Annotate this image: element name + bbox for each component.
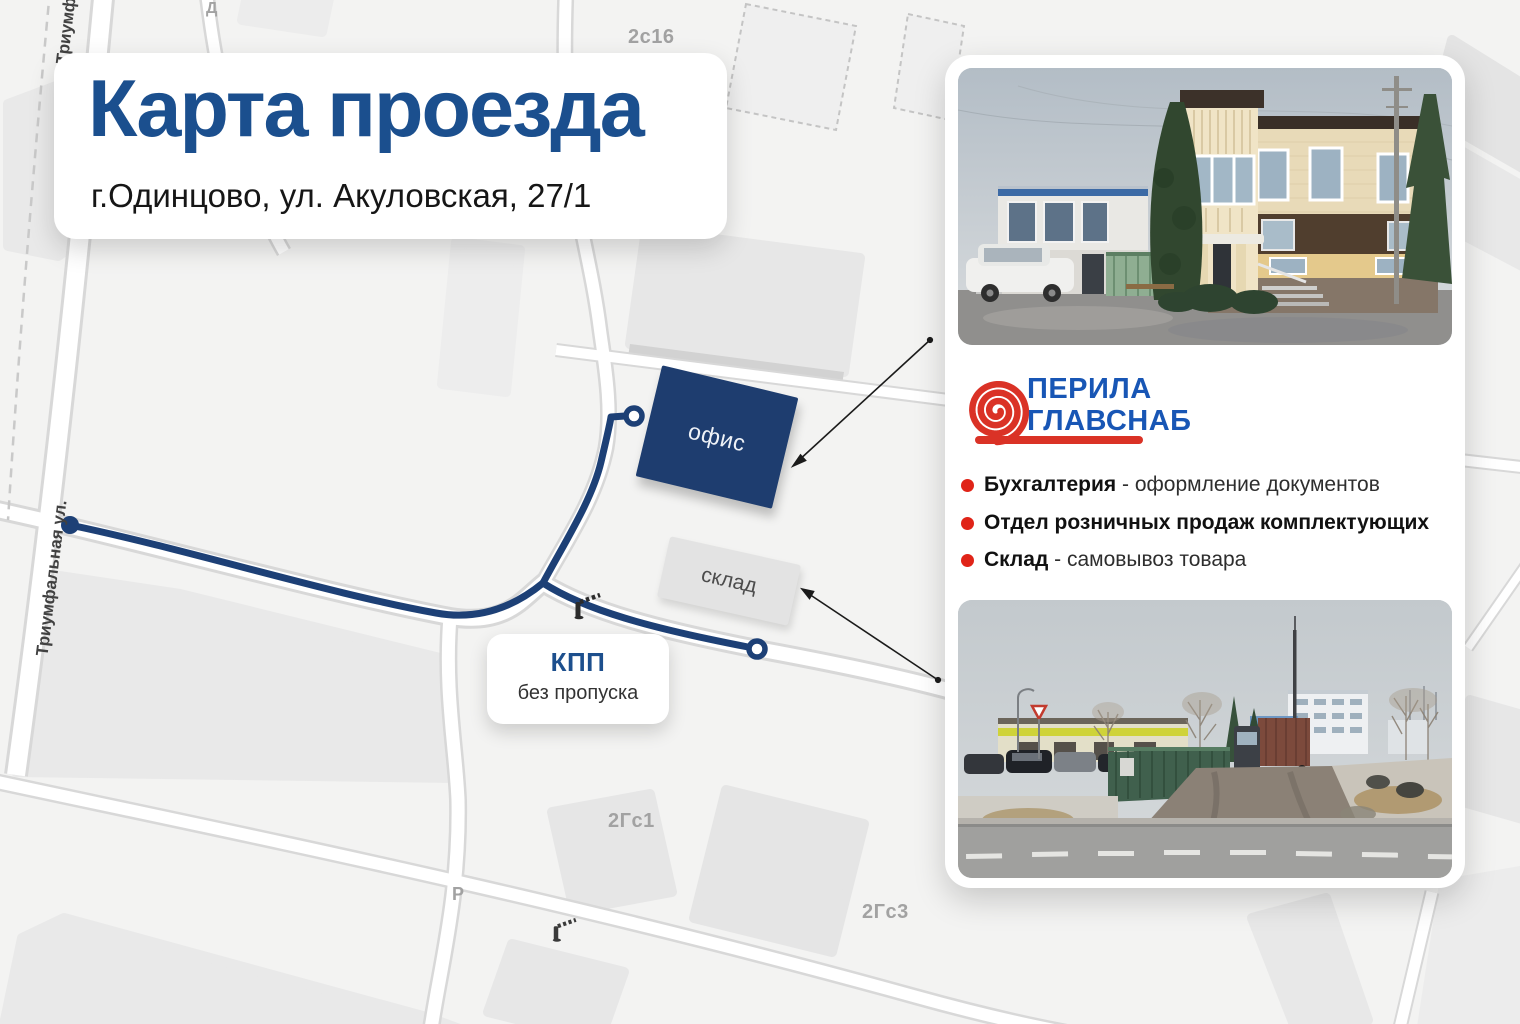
office-building-label: офис (686, 417, 749, 457)
bullet-icon (961, 554, 974, 567)
warehouse-building-label: склад (699, 563, 759, 599)
parcel-label-2gs3: 2Гс3 (862, 901, 909, 924)
office-photo-art (958, 68, 1452, 345)
bullet-icon (961, 479, 974, 492)
checkpoint-card: КПП без пропуска (487, 634, 669, 724)
parcel-label-2s16: 2с16 (628, 26, 675, 49)
bullet-retail-department: Отдел розничных продаж комплектующих (961, 511, 1457, 535)
logo-text-line1: ПЕРИЛА (1027, 373, 1152, 406)
parcel-label-p: Р (452, 884, 465, 905)
flyer-route-map: Триумфальная ул. Триумфальная ул. Д 2с16… (0, 0, 1520, 1024)
logo-text-line2: ГЛАВСНАБ (1027, 405, 1192, 438)
entrance-photo (958, 600, 1452, 878)
checkpoint-ring-marker (749, 641, 765, 657)
checkpoint-subtitle: без пропуска (487, 682, 669, 705)
bullet-warehouse: Склад - самовывоз товара (961, 548, 1457, 572)
page-title: Карта проезда (88, 55, 643, 164)
bullet-icon (961, 517, 974, 530)
office-photo (958, 68, 1452, 345)
bullet-accounting: Бухгалтерия - оформление документов (961, 473, 1457, 497)
title-card: Карта проезда г.Одинцово, ул. Акуловская… (54, 53, 727, 239)
bullet-rest-text: - самовывоз товара (1048, 548, 1246, 571)
barrier-gate-icon-2 (553, 920, 576, 942)
office-ring-marker (626, 408, 642, 424)
bullet-bold-text: Отдел розничных продаж комплектующих (984, 511, 1429, 534)
address-subtitle: г.Одинцово, ул. Акуловская, 27/1 (91, 177, 591, 215)
map-buildings-dashed (726, 4, 964, 130)
bullet-bold-text: Бухгалтерия (984, 473, 1116, 496)
parcel-label-2gs1: 2Гс1 (608, 810, 655, 833)
bullet-bold-text: Склад (984, 548, 1048, 571)
info-panel: ПЕРИЛА ГЛАВСНАБ Бухгалтерия - оформление… (945, 55, 1465, 888)
logo-underline (975, 436, 1143, 444)
parcel-label-d: Д (206, 0, 218, 18)
bullet-rest-text: - оформление документов (1116, 473, 1380, 496)
entrance-photo-art (958, 600, 1452, 878)
checkpoint-title: КПП (487, 647, 669, 678)
boundary-dashed-line (8, 0, 50, 520)
